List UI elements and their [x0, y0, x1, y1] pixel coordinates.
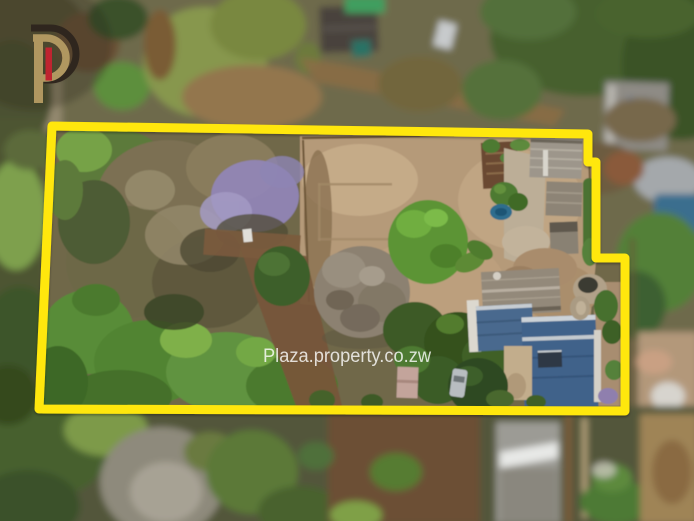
property-interior-layer: [28, 115, 635, 422]
aerial-property-photo: Plaza.property.co.zw: [0, 0, 694, 521]
watermark-text: Plaza.property.co.zw: [263, 346, 431, 367]
scene-canvas: Plaza.property.co.zw: [0, 0, 694, 521]
logo-red-bar-icon: [46, 48, 53, 81]
